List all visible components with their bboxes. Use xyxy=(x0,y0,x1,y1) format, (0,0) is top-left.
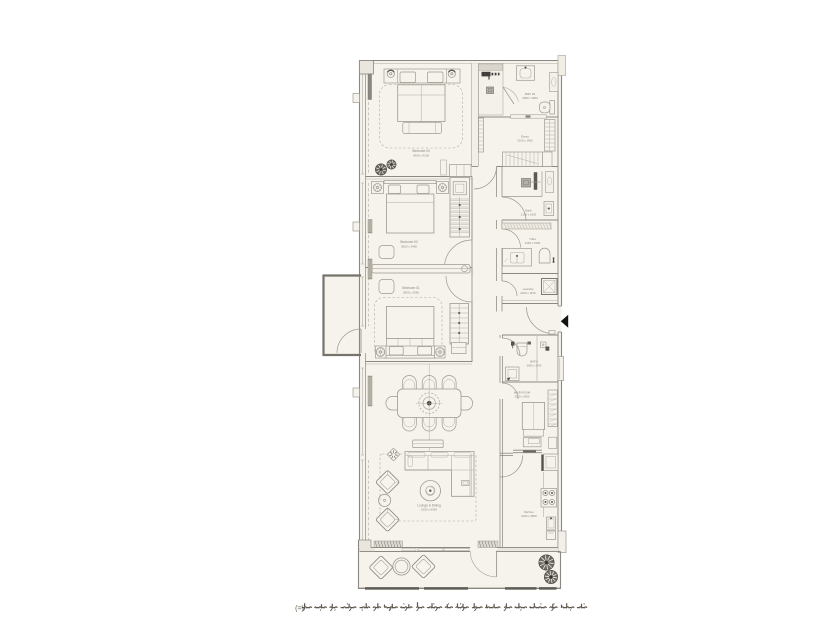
svg-text:Bedroom 01: Bedroom 01 xyxy=(402,286,420,290)
svg-text:2600 x 1600: 2600 x 1600 xyxy=(522,96,538,100)
svg-text:2100 x 2400: 2100 x 2400 xyxy=(515,395,530,399)
svg-text:2100 x 3800: 2100 x 3800 xyxy=(521,514,537,518)
svg-text:3650 x 3400: 3650 x 3400 xyxy=(401,245,417,249)
svg-text:MAID ROOM: MAID ROOM xyxy=(514,391,531,395)
svg-text:2100 x 1100: 2100 x 1100 xyxy=(520,291,536,295)
svg-text:BATH: BATH xyxy=(530,360,538,364)
svg-text:2100 x 1600: 2100 x 1600 xyxy=(521,213,537,217)
svg-text:4000 x 4100: 4000 x 4100 xyxy=(413,154,429,158)
svg-text:Bedroom 02: Bedroom 02 xyxy=(400,240,418,244)
svg-text:2100 x 1900: 2100 x 1900 xyxy=(517,139,533,143)
svg-text:3650 x 3590: 3650 x 3590 xyxy=(403,291,419,295)
svg-text:Bedroom 03: Bedroom 03 xyxy=(412,149,430,153)
svg-text:2005 x 1700: 2005 x 1700 xyxy=(527,364,542,368)
svg-text:5100 x 6000: 5100 x 6000 xyxy=(421,508,437,512)
svg-text:(=): (=) xyxy=(295,605,304,612)
svg-text:2100 x 1500: 2100 x 1500 xyxy=(525,241,541,245)
